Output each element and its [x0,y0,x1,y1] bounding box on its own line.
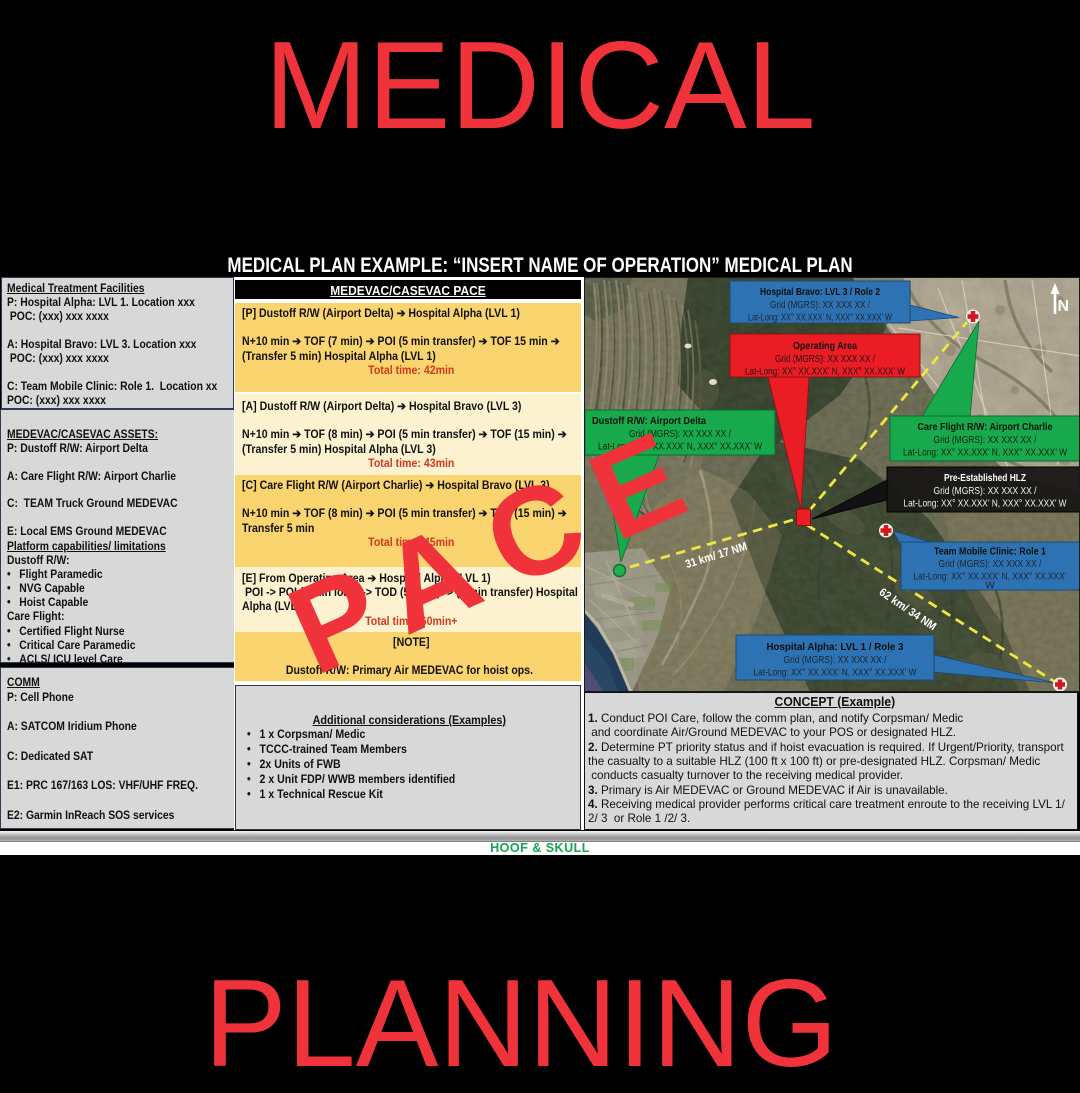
svg-text:Grid (MGRS): XX XXX XX /: Grid (MGRS): XX XXX XX / [934,486,1037,497]
svg-text:Pre-Established HLZ: Pre-Established HLZ [944,472,1026,484]
svg-text:Grid (MGRS): XX XXX XX /: Grid (MGRS): XX XXX XX / [770,300,870,311]
svg-text:Care Flight R/W: Airport Char: Care Flight R/W: Airport Charlie [918,421,1053,433]
svg-text:Grid (MGRS): XX XXX XX /: Grid (MGRS): XX XXX XX / [934,435,1037,446]
svg-text:Lat-Long: XX° XX.XXX’ N, XXX°: Lat-Long: XX° XX.XXX’ N, XXX° XX.XXX’ W [745,367,905,378]
svg-text:Lat-Long: XX° XX.XXX’ N, XXX°: Lat-Long: XX° XX.XXX’ N, XXX° XX.XXX’ W [754,668,917,679]
svg-text:Grid (MGRS): XX XXX XX /: Grid (MGRS): XX XXX XX / [939,559,1042,570]
svg-text:Grid (MGRS): XX XXX XX /: Grid (MGRS): XX XXX XX / [775,354,875,365]
svg-text:Grid (MGRS): XX XXX XX /: Grid (MGRS): XX XXX XX / [784,655,887,666]
svg-text:Hospital Bravo: LVL 3 / Role 2: Hospital Bravo: LVL 3 / Role 2 [760,286,880,298]
svg-text:W: W [985,581,995,592]
svg-text:Operating Area: Operating Area [793,340,857,352]
svg-text:Lat-Long: XX° XX.XXX’ N, XXX°: Lat-Long: XX° XX.XXX’ N, XXX° XX.XXX’ W [903,448,1067,459]
svg-text:Team Mobile Clinic: Role 1: Team Mobile Clinic: Role 1 [934,546,1046,558]
svg-text:Hospital Alpha: LVL 1 / Role 3: Hospital Alpha: LVL 1 / Role 3 [767,641,904,653]
svg-text:Lat-Long: XX° XX.XXX’ N, XXX°: Lat-Long: XX° XX.XXX’ N, XXX° XX.XXX’ W [748,313,892,324]
svg-text:N: N [1058,298,1070,315]
svg-text:Lat-Long: XX° XX.XXX’ N, XXX°: Lat-Long: XX° XX.XXX’ N, XXX° XX.XXX’ W [904,499,1067,510]
